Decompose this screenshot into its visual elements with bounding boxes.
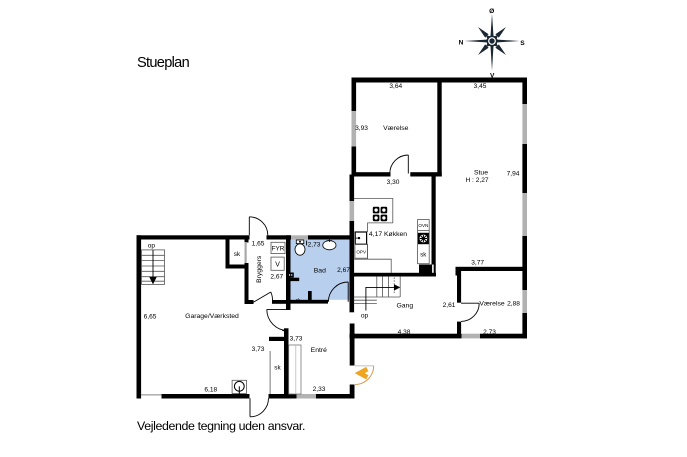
svg-text:2,67: 2,67 <box>270 273 283 280</box>
svg-text:Garage/Værksted: Garage/Værksted <box>185 313 239 320</box>
svg-text:sk: sk <box>274 365 281 372</box>
svg-text:sk: sk <box>296 297 301 302</box>
svg-text:Værelse: Værelse <box>383 125 409 132</box>
svg-text:Entré: Entré <box>311 347 327 354</box>
svg-text:FYR: FYR <box>272 246 285 253</box>
svg-text:Bryggers: Bryggers <box>256 255 263 283</box>
svg-text:S: S <box>520 40 525 47</box>
svg-text:Ø: Ø <box>489 8 494 15</box>
svg-text:sk: sk <box>234 251 241 258</box>
svg-text:4,38: 4,38 <box>398 329 411 336</box>
svg-text:OVN: OVN <box>418 223 428 228</box>
svg-text:V: V <box>275 261 280 268</box>
svg-text:2,73: 2,73 <box>483 329 496 336</box>
svg-text:3,73: 3,73 <box>290 336 303 343</box>
svg-text:3,30: 3,30 <box>387 179 400 186</box>
svg-text:6,18: 6,18 <box>204 386 217 393</box>
svg-text:6,65: 6,65 <box>144 314 157 321</box>
svg-text:H : 2,27: H : 2,27 <box>465 177 488 184</box>
svg-text:Bad: Bad <box>314 268 326 275</box>
svg-text:3,73: 3,73 <box>252 346 265 353</box>
svg-text:sk: sk <box>420 253 427 259</box>
svg-text:3,64: 3,64 <box>389 83 402 90</box>
svg-text:OPV: OPV <box>356 249 367 254</box>
svg-text:2,61: 2,61 <box>443 302 456 309</box>
svg-text:op: op <box>148 243 156 250</box>
svg-text:Vejledende tegning uden ansvar: Vejledende tegning uden ansvar. <box>137 419 305 433</box>
svg-text:7,94: 7,94 <box>507 171 520 178</box>
svg-text:2,73: 2,73 <box>308 242 321 249</box>
svg-text:2,67: 2,67 <box>337 267 350 274</box>
svg-text:2,88: 2,88 <box>507 301 520 308</box>
svg-text:3,93: 3,93 <box>355 125 368 132</box>
svg-text:1,65: 1,65 <box>252 241 265 248</box>
svg-text:Værelse: Værelse <box>479 301 505 308</box>
svg-text:Stue: Stue <box>474 170 488 177</box>
svg-text:2,33: 2,33 <box>313 386 326 393</box>
svg-text:3,77: 3,77 <box>471 259 484 266</box>
svg-text:op: op <box>361 312 369 319</box>
svg-text:3,45: 3,45 <box>474 83 487 90</box>
svg-text:Stueplan: Stueplan <box>137 55 190 71</box>
svg-text:4,17 Køkken: 4,17 Køkken <box>369 231 407 238</box>
svg-text:N: N <box>459 39 464 46</box>
svg-text:Gang: Gang <box>396 303 413 310</box>
